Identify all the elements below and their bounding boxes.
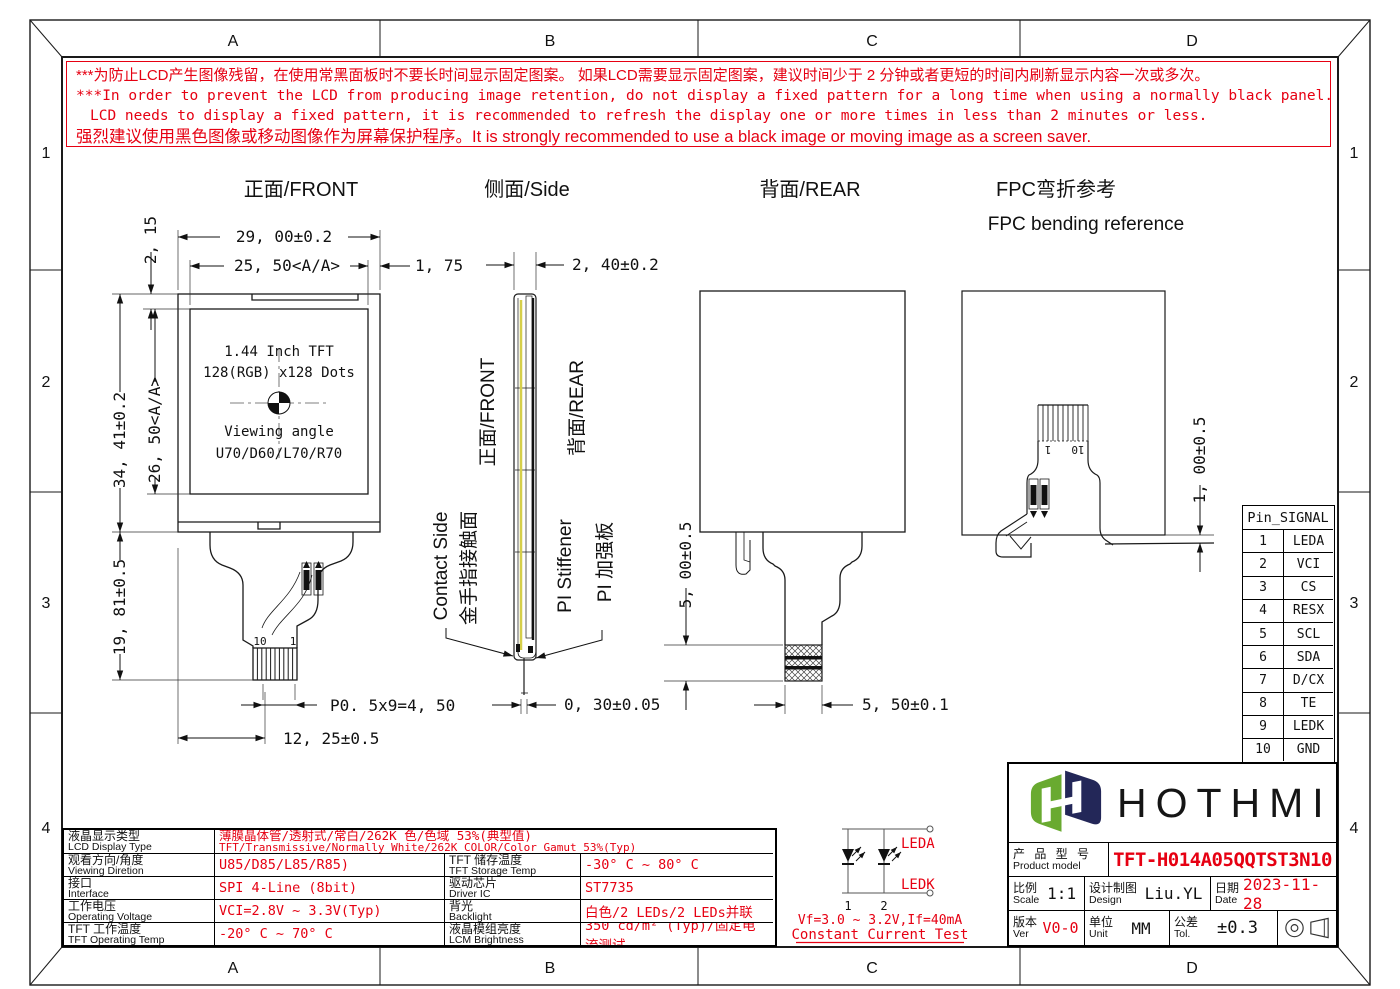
- pin-table-header: Pin_SIGNAL: [1243, 506, 1333, 529]
- product-model-row: 产 品 型 号 Product model TFT-H014A05QQTST3N…: [1009, 843, 1336, 877]
- col-label-a-bottom: A: [228, 960, 239, 977]
- spec-label-cn: 驱动芯片: [449, 877, 576, 889]
- spec-label-en: Interface: [68, 889, 210, 900]
- col-label-d-top: D: [1186, 33, 1198, 50]
- row-label-4-right: 4: [1350, 820, 1359, 837]
- product-model-value: TFT-H014A05QQTST3N10: [1113, 849, 1332, 871]
- title-block: HOTHMI 产 品 型 号 Product model TFT-H014A05…: [1007, 762, 1338, 947]
- bend-components: [1029, 479, 1049, 518]
- spec-label-cn: 工作电压: [68, 900, 210, 912]
- col-label-b-bottom: B: [545, 960, 556, 977]
- scale-design-date-row: 比例 Scale 1:1 设计制图 Design Liu.YL 日期 Date …: [1009, 877, 1336, 911]
- led-test-note: Constant Current Test: [791, 927, 968, 943]
- fpc-bending-view: FPC弯折参考 FPC bending reference: [962, 178, 1214, 572]
- spec-value: SPI 4-Line (8bit): [214, 876, 444, 899]
- pin-number: 10: [1243, 738, 1283, 761]
- pin-number: 2: [1243, 552, 1283, 575]
- front-dim-aa-height: 26, 50<A/A>: [145, 377, 164, 483]
- spec-value: 薄膜晶体管/透射式/常白/262K 色/色域 53%(典型值) TFT/Tran…: [214, 830, 773, 853]
- spec-label: TFT 储存温度 TFT Storage Temp: [444, 853, 580, 876]
- spec-label: 液晶显示类型 LCD Display Type: [64, 830, 214, 853]
- pin-signal: RESX: [1283, 599, 1333, 622]
- rear-view-title: 背面/REAR: [759, 178, 860, 201]
- drawing-sheet: A B C D A B C D 1 2 3 4 1 2 3 4 正面/FRONT: [0, 0, 1400, 989]
- logo-row: HOTHMI: [1009, 764, 1336, 843]
- spec-label-cn: 观看方向/角度: [68, 854, 210, 866]
- date-label-cn: 日期: [1215, 882, 1239, 895]
- col-label-d-bottom: D: [1186, 960, 1198, 977]
- pin-signal: TE: [1283, 692, 1333, 715]
- col-label-a-top: A: [228, 33, 239, 50]
- spec-value-en: TFT/Transmissive/Normally White/262K COL…: [219, 842, 769, 853]
- warning-line-2: ***In order to prevent the LCD from prod…: [76, 86, 1330, 106]
- front-pin1-label: 1: [290, 635, 297, 648]
- spec-label: 液晶模组亮度 LCM Brightness: [444, 922, 580, 945]
- spec-label-en: Operating Voltage: [68, 912, 210, 923]
- front-dim-top-margin: 2, 15: [141, 216, 160, 264]
- spec-label: TFT 工作温度 TFT Operating Temp: [64, 922, 214, 945]
- spec-value: VCI=2.8V ~ 3.3V(Typ): [214, 899, 444, 922]
- spec-label-en: LCM Brightness: [449, 935, 576, 946]
- contact-side-label-en: Contact Side: [431, 512, 452, 621]
- spec-label-en: TFT Storage Temp: [449, 866, 576, 877]
- pin-signal: SCL: [1283, 622, 1333, 645]
- side-view: 侧面/Side 2, 40±0.2: [431, 178, 660, 714]
- date-label-en: Date: [1215, 895, 1239, 906]
- front-dim-fpc-width: 12, 25±0.5: [283, 729, 379, 748]
- led2-number: 2: [880, 899, 887, 913]
- panel-spec-line4: U70/D60/L70/R70: [216, 446, 342, 462]
- bend-title-cn: FPC弯折参考: [996, 178, 1116, 201]
- pin-number: 1: [1243, 529, 1283, 552]
- pin-signal: D/CX: [1283, 668, 1333, 691]
- front-contact-fingers: [257, 648, 292, 680]
- pin-signal: LEDA: [1283, 529, 1333, 552]
- warning-line-3: LCD needs to display a fixed pattern, it…: [76, 106, 1330, 126]
- third-angle-projection-icon: [1282, 913, 1332, 943]
- front-dim-width: 29, 00±0.2: [236, 227, 332, 246]
- scale-label-en: Scale: [1013, 895, 1039, 906]
- front-tail-components: [302, 561, 323, 595]
- pin-signal-table: Pin_SIGNAL 1 LEDA 2 VCI 3 CS 4 RESX 5 SC…: [1242, 505, 1335, 763]
- spec-label-cn: TFT 储存温度: [449, 854, 576, 866]
- tolerance-value: ±0.3: [1217, 918, 1258, 938]
- row-label-2-left: 2: [42, 374, 51, 391]
- brand-name: HOTHMI: [1117, 780, 1333, 827]
- row-label-1-right: 1: [1350, 145, 1359, 162]
- pin-signal: VCI: [1283, 552, 1333, 575]
- pin-number: 6: [1243, 645, 1283, 668]
- front-pin10-label: 10: [253, 635, 266, 648]
- led1-number: 1: [844, 899, 851, 913]
- pin-number: 4: [1243, 599, 1283, 622]
- warning-box: ***为防止LCD产生图像残留，在使用常黑面板时不要长时间显示固定图案。 如果L…: [66, 61, 1331, 147]
- contact-side-label-cn: 金手指接触面: [458, 511, 480, 625]
- rear-contact-pad: [785, 645, 822, 681]
- spec-label-cn: 液晶模组亮度: [449, 923, 576, 935]
- unit-label-en: Unit: [1089, 929, 1113, 940]
- side-front-face-label: 正面/FRONT: [478, 357, 499, 466]
- row-label-2-right: 2: [1350, 374, 1359, 391]
- pin-number: 7: [1243, 668, 1283, 691]
- side-view-title: 侧面/Side: [484, 178, 570, 201]
- spec-table: 液晶显示类型 LCD Display Type 薄膜晶体管/透射式/常白/262…: [62, 828, 777, 947]
- front-dim-height: 34, 41±0.2: [110, 392, 129, 488]
- design-label-en: Design: [1089, 895, 1137, 906]
- spec-value: U85/D85/L85/R85): [214, 853, 444, 876]
- pin-signal: SDA: [1283, 645, 1333, 668]
- spec-value: 350 cd/m² (Typ)/固定电流测试: [580, 922, 773, 945]
- col-label-b-top: B: [545, 33, 556, 50]
- designer-name: Liu.YL: [1145, 884, 1203, 903]
- pin-signal: LEDK: [1283, 715, 1333, 738]
- bend-pin10-label: 10: [1071, 443, 1084, 456]
- version-label-en: Ver: [1013, 929, 1037, 940]
- spec-value: ST7735: [580, 876, 773, 899]
- hothmi-logo-icon: [1023, 767, 1109, 839]
- panel-spec-line1: 1.44 Inch TFT: [224, 344, 334, 360]
- spec-label-en: LCD Display Type: [68, 842, 210, 853]
- spec-label-en: Backlight: [449, 912, 576, 923]
- spec-label-cn: 接口: [68, 877, 210, 889]
- spec-label-en: Driver IC: [449, 889, 576, 900]
- pin-signal: GND: [1283, 738, 1333, 761]
- scale-label-cn: 比例: [1013, 882, 1039, 895]
- date-value: 2023-11-28: [1243, 877, 1332, 910]
- bend-dim-gap: 1, 00±0.5: [1190, 417, 1209, 504]
- spec-label-cn: TFT 工作温度: [68, 923, 210, 935]
- front-view: 正面/FRONT: [110, 179, 463, 748]
- pin-number: 5: [1243, 622, 1283, 645]
- front-dim-right-margin: 1, 75: [415, 256, 463, 275]
- led-vf-spec: Vf=3.0 ~ 3.2V,If=40mA: [798, 913, 963, 928]
- spec-label: 驱动芯片 Driver IC: [444, 876, 580, 899]
- spec-value: -30° C ~ 80° C: [580, 853, 773, 876]
- panel-spec-line2: 128(RGB) x128 Dots: [203, 365, 355, 381]
- warning-line-1: ***为防止LCD产生图像残留，在使用常黑面板时不要长时间显示固定图案。 如果L…: [76, 65, 1330, 86]
- front-dim-tail-length: 19, 81±0.5: [110, 559, 129, 655]
- bend-title-en: FPC bending reference: [988, 214, 1184, 235]
- version-value: V0-0: [1042, 919, 1078, 937]
- row-label-4-left: 4: [42, 820, 51, 837]
- side-dim-thickness: 2, 40±0.2: [572, 255, 659, 274]
- bend-pin1-label: 1: [1045, 443, 1052, 456]
- row-label-1-left: 1: [42, 145, 51, 162]
- ledk-label: LEDK: [901, 877, 935, 893]
- spec-value: 白色/2 LEDs/2 LEDs并联: [580, 899, 773, 922]
- scale-value: 1:1: [1047, 884, 1076, 903]
- design-label-cn: 设计制图: [1089, 882, 1137, 895]
- tolerance-label-en: Tol.: [1174, 929, 1198, 940]
- product-model-label-cn: 产 品 型 号: [1013, 848, 1092, 861]
- col-label-c-bottom: C: [866, 960, 878, 977]
- pin-signal: CS: [1283, 576, 1333, 599]
- leda-label: LEDA: [901, 836, 935, 852]
- side-dim-fpc-thickness: 0, 30±0.05: [564, 695, 660, 714]
- spec-label: 工作电压 Operating Voltage: [64, 899, 214, 922]
- row-label-3-right: 3: [1350, 595, 1359, 612]
- spec-label: 接口 Interface: [64, 876, 214, 899]
- rear-view: 背面/REAR 5, 00±0.5 5, 50±0.1: [664, 178, 949, 714]
- led-symbol-icon: [878, 847, 901, 864]
- product-model-label-en: Product model: [1013, 861, 1092, 872]
- warning-line-4: 强烈建议使用黑色图像或移动图像作为屏幕保护程序。It is strongly r…: [76, 126, 1330, 147]
- spec-value: -20° C ~ 70° C: [214, 922, 444, 945]
- front-dim-pin-pitch: P0. 5x9=4, 50: [330, 696, 455, 715]
- pin-number: 9: [1243, 715, 1283, 738]
- pin-number: 8: [1243, 692, 1283, 715]
- led-circuit: LEDA LEDK 1 2 Vf=3.0 ~ 3.2V,If=40mA Cons…: [791, 826, 968, 943]
- unit-value: MM: [1131, 919, 1150, 938]
- version-unit-tol-row: 版本 Ver V0-0 单位 Unit MM 公差 Tol. ±0.3: [1009, 911, 1336, 945]
- front-view-title: 正面/FRONT: [244, 179, 358, 201]
- front-dim-aa-width: 25, 50<A/A>: [234, 256, 340, 275]
- side-rear-face-label: 背面/REAR: [566, 360, 588, 456]
- rear-dim-pad-width: 5, 50±0.1: [862, 695, 949, 714]
- rear-dim-pad-height: 5, 00±0.5: [676, 522, 695, 609]
- spec-label-cn: 背光: [449, 900, 576, 912]
- pi-stiffener-label-en: PI Stiffener: [555, 519, 576, 613]
- led-symbol-icon: [842, 847, 865, 864]
- spec-label-en: TFT Operating Temp: [68, 935, 210, 946]
- col-label-c-top: C: [866, 33, 878, 50]
- spec-label: 观看方向/角度 Viewing Diretion: [64, 853, 214, 876]
- spec-label: 背光 Backlight: [444, 899, 580, 922]
- spec-label-en: Viewing Diretion: [68, 866, 210, 877]
- pi-stiffener-label-cn: PI 加强板: [594, 522, 616, 602]
- row-label-3-left: 3: [42, 595, 51, 612]
- panel-spec-line3: Viewing angle: [224, 424, 334, 440]
- pin-number: 3: [1243, 576, 1283, 599]
